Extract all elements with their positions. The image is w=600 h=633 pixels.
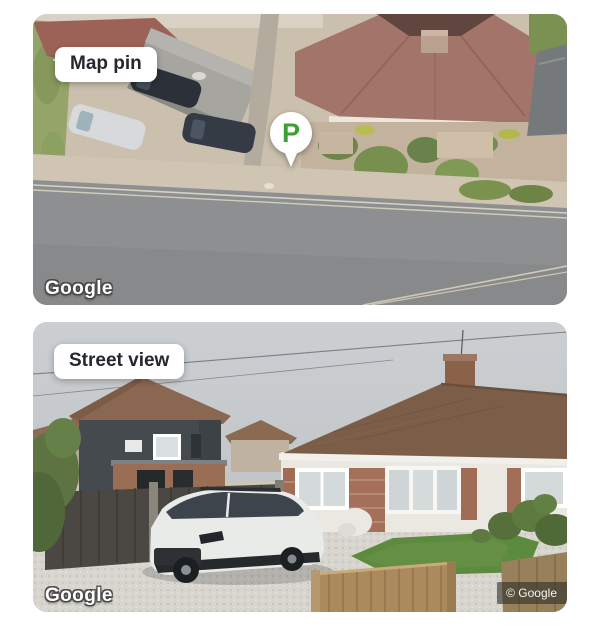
page: Map pin P Google xyxy=(0,0,600,633)
street-view-label-text: Street view xyxy=(69,350,169,371)
parking-pin-letter: P xyxy=(282,118,300,148)
map-pin-image[interactable]: Map pin P Google xyxy=(33,14,567,305)
google-copyright-badge: © Google xyxy=(497,582,567,604)
street-view-image[interactable]: Street view Google © Google xyxy=(33,322,567,612)
map-pin-label: Map pin xyxy=(55,47,157,82)
street-view-label: Street view xyxy=(54,344,184,379)
parking-pin-icon: P xyxy=(270,111,312,168)
google-watermark: Google xyxy=(45,585,113,607)
google-watermark: Google xyxy=(45,278,113,300)
parking-pin-bubble: P xyxy=(270,111,312,168)
map-pin-label-text: Map pin xyxy=(70,53,142,74)
